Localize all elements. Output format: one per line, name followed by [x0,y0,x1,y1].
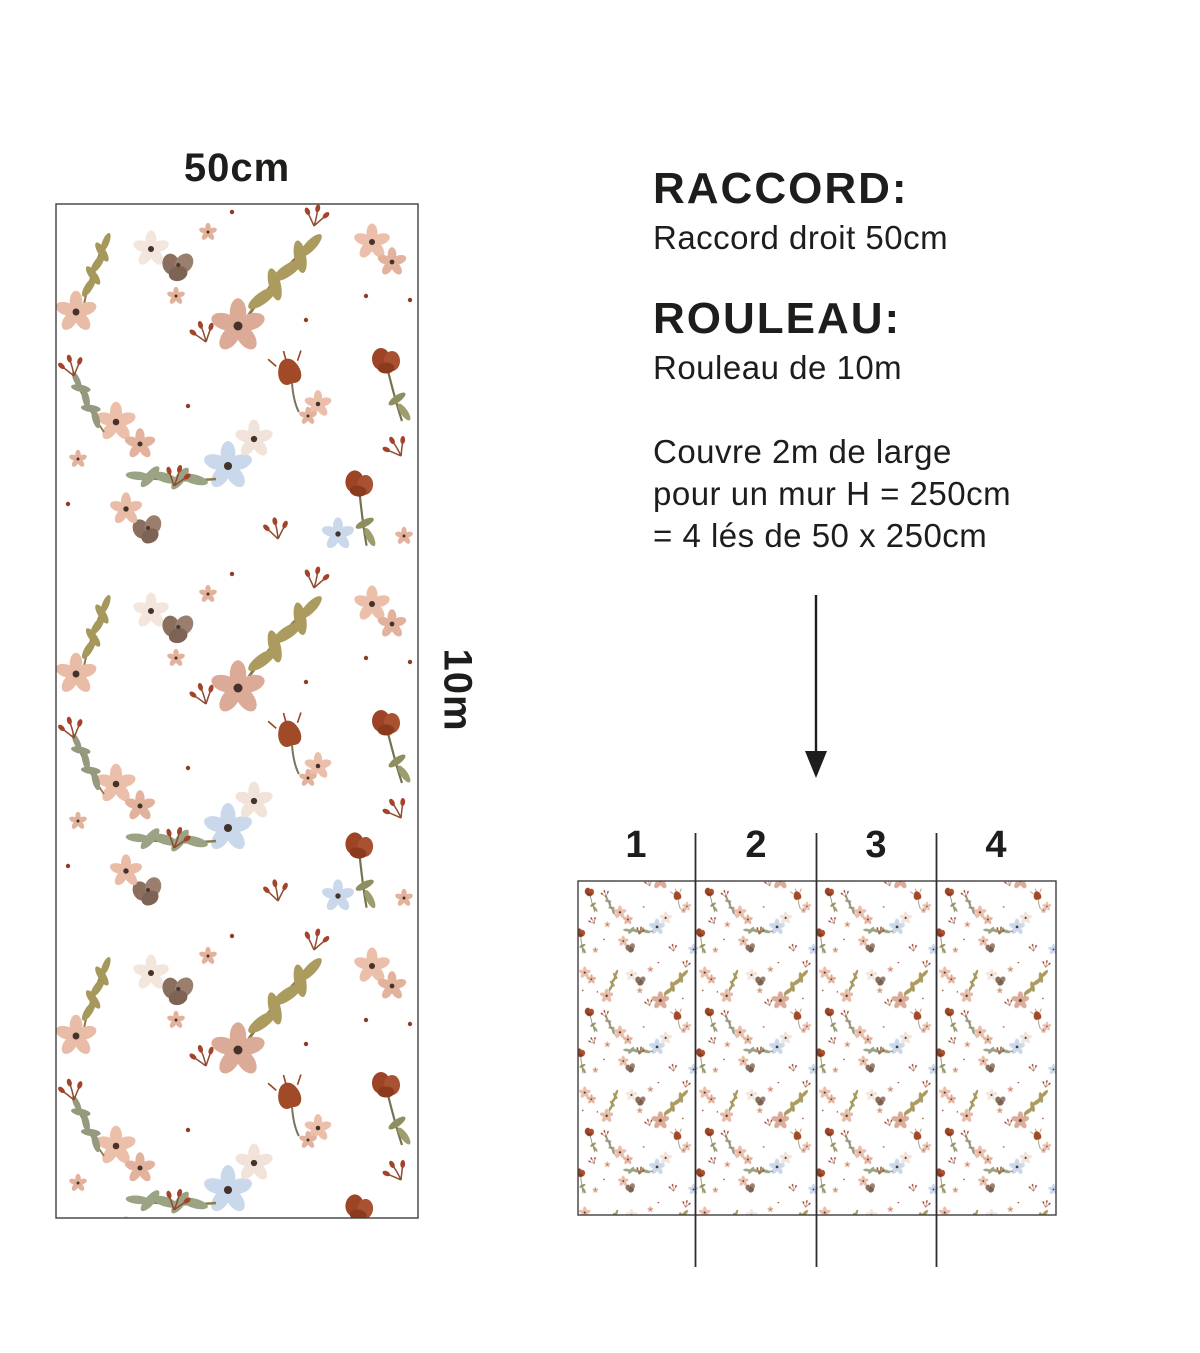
coverage-line-3: = 4 lés de 50 x 250cm [653,515,1011,557]
coverage-line-1: Couvre 2m de large [653,431,1011,473]
roll-width-label: 50cm [56,146,418,191]
strip-label-1: 1 [591,824,681,867]
raccord-title: RACCORD: [653,164,909,214]
raccord-value: Raccord droit 50cm [653,219,948,257]
strip-label-4: 4 [951,824,1041,867]
coverage-text: Couvre 2m de large pour un mur H = 250cm… [653,431,1011,557]
rouleau-title: ROULEAU: [653,294,901,344]
wallpaper-format-diagram: 50cm 10m RACCORD: Raccord droit 50cm ROU… [0,0,1200,1353]
coverage-line-2: pour un mur H = 250cm [653,473,1011,515]
rouleau-value: Rouleau de 10m [653,349,902,387]
diagram-canvas [0,0,1200,1353]
roll-length-label: 10m [435,648,480,731]
strip-label-2: 2 [711,824,801,867]
roll-preview-rect [56,204,418,1218]
strip-label-3: 3 [831,824,921,867]
down-arrow-icon [805,595,827,778]
